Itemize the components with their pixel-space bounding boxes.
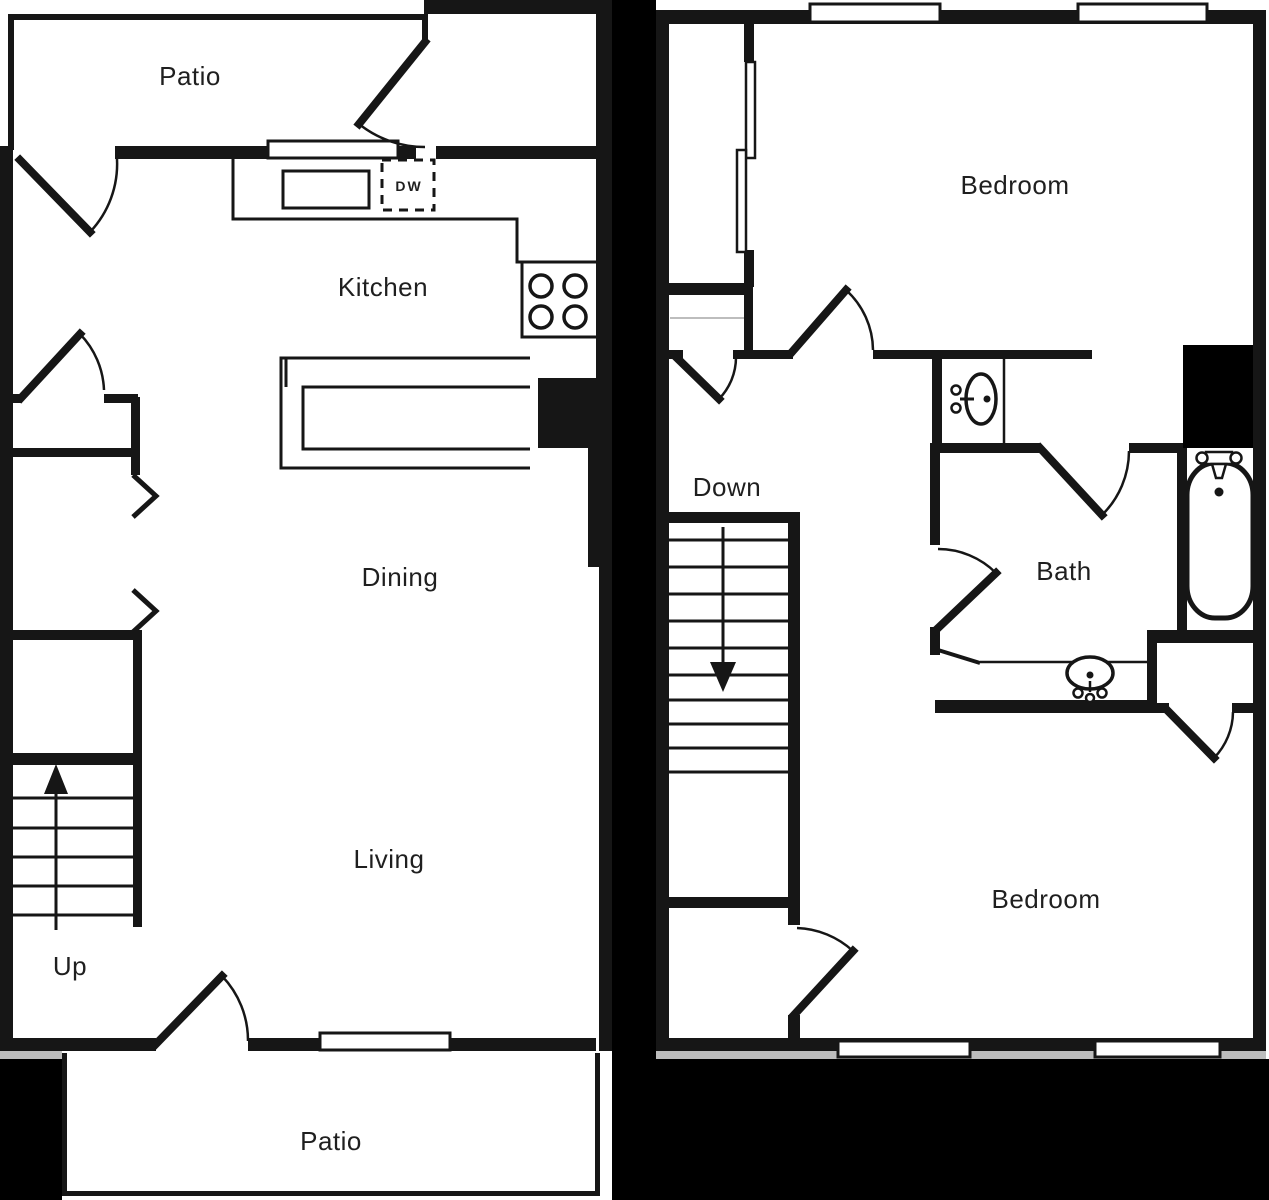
bathtub-icon — [1187, 452, 1253, 618]
door-leaf — [1040, 448, 1102, 515]
room-label-patio-top: Patio — [159, 61, 221, 91]
door-swing-icon — [1102, 451, 1129, 515]
hall-wall — [0, 448, 138, 457]
up-arrow-icon — [44, 764, 68, 930]
unit-top-wall-seg2 — [398, 146, 416, 159]
floor2-bottom-void — [656, 1059, 1269, 1200]
hall-top-wall — [733, 350, 793, 359]
vanity-sink-icon — [938, 650, 1147, 702]
dishwasher-icon: DW — [382, 160, 434, 210]
top-wall-bar — [424, 0, 612, 14]
sink-alcove-left-wall — [932, 359, 942, 446]
left-exterior-wall — [0, 146, 13, 1051]
patio-top-wall — [8, 14, 428, 20]
floor-1-plan: Up DW Patio K — [0, 0, 612, 1196]
patio2-bottom-wall — [62, 1191, 600, 1196]
down-arrow-icon — [710, 527, 736, 692]
floor1-corner-void — [0, 1059, 62, 1200]
unit-top-wall-seg1 — [115, 146, 268, 159]
door-swing-icon — [222, 976, 248, 1041]
patio-entry-door — [359, 42, 425, 147]
door-leaf — [1167, 710, 1214, 758]
door-swing-icon — [846, 290, 873, 350]
bath-bottom-wall — [935, 700, 1157, 713]
patio-to-unit-door — [20, 159, 117, 232]
stair-direction-label: Down — [693, 472, 761, 502]
stair-treads-icon — [13, 798, 133, 915]
bath-top-wall — [935, 350, 1092, 359]
room-label-patio-bottom: Patio — [300, 1126, 362, 1156]
right-exterior-wall-lower — [599, 448, 612, 1051]
door-swing-icon — [797, 928, 853, 951]
under-stair-closet-wall — [669, 897, 800, 908]
stair-treads-icon — [669, 540, 788, 772]
plan-separator-band — [612, 0, 656, 1200]
bedroom-front-wall — [873, 350, 935, 359]
kitchen-sink-icon — [283, 171, 369, 208]
door-leaf — [794, 951, 853, 1015]
tub-alcove-bottom-wall — [1147, 630, 1266, 643]
staircase-up: Up — [13, 764, 133, 981]
stove-burners-icon — [522, 262, 596, 337]
left-exterior-wall — [656, 10, 669, 1051]
storage-room-door — [21, 334, 104, 398]
kitchen-fixtures: DW — [233, 159, 612, 468]
sliding-closet-door-icon — [737, 62, 755, 252]
door-leaf — [156, 976, 222, 1044]
floor2-walls — [656, 10, 1266, 1051]
bedroom-top-door — [792, 290, 873, 352]
window-icon — [838, 1041, 970, 1057]
window-icon — [268, 141, 398, 158]
opening-chevron-icon — [133, 590, 156, 632]
dishwasher-label: DW — [395, 178, 422, 194]
door-leaf — [21, 334, 80, 398]
nook-door-right-stub — [1232, 703, 1253, 713]
window-icon — [810, 4, 940, 22]
room-label-bedroom-top: Bedroom — [961, 170, 1070, 200]
door-leaf — [792, 290, 846, 352]
door-leaf — [676, 357, 719, 399]
closet-wall-stub-top — [744, 24, 754, 62]
door-leaf — [936, 573, 996, 630]
bottom-wall-seg2 — [248, 1038, 320, 1051]
room-label-dining: Dining — [362, 562, 439, 592]
floor-2-plan: Down — [656, 4, 1266, 1057]
sink-alcove-bottom-wall — [930, 443, 1040, 453]
bath-left-wall-upper — [930, 453, 940, 545]
bottom-wall-seg1 — [0, 1038, 156, 1051]
door-swing-icon — [80, 334, 104, 390]
room-label-living: Living — [354, 844, 425, 874]
stairwell-top-wall — [669, 512, 793, 523]
opening-chevron-icon — [133, 475, 156, 517]
room-label-bedroom-bottom: Bedroom — [992, 884, 1101, 914]
bath-door — [1040, 448, 1129, 515]
patio2-left-wall — [62, 1053, 67, 1196]
bath-sink-icon — [952, 359, 1005, 445]
linen-room-door — [676, 357, 736, 399]
stair-head-wall — [0, 753, 133, 765]
door-swing-icon — [1214, 712, 1233, 758]
stair-side-wall — [133, 630, 142, 927]
door-leaf — [359, 42, 425, 124]
bath-door-stub-wall — [1129, 443, 1183, 453]
door-leaf — [20, 160, 90, 232]
refrigerator-icon — [538, 378, 612, 448]
window-icon — [1078, 4, 1207, 22]
peninsula-counter — [281, 358, 530, 468]
chase-block — [1183, 345, 1253, 448]
stair-direction-label: Up — [53, 951, 87, 981]
living-patio-door — [156, 976, 248, 1044]
bedroom-closet-door — [794, 928, 853, 1015]
door-swing-icon — [719, 357, 736, 399]
patio2-right-wall — [595, 1053, 600, 1196]
window-icon — [1095, 1041, 1220, 1057]
bottom-patio-walls — [62, 1053, 600, 1196]
linen-room-right-wall — [744, 283, 753, 359]
door-swing-icon — [90, 159, 117, 232]
door-swing-icon — [938, 549, 996, 573]
bath-nook-door — [1167, 710, 1233, 758]
background-voids — [0, 0, 1269, 1200]
bath-side-door — [936, 549, 996, 630]
room-label-kitchen: Kitchen — [338, 272, 428, 302]
hall-side-wall-upper — [131, 397, 140, 475]
unit-top-wall-seg3 — [436, 146, 596, 159]
stairwell-side-wall — [788, 512, 800, 925]
window-icon — [320, 1033, 450, 1050]
floorplan-page: Up DW Patio K — [0, 0, 1269, 1200]
bottom-wall-seg3 — [450, 1038, 596, 1051]
room-label-bath: Bath — [1036, 556, 1092, 586]
stair-closet-top-wall — [0, 630, 138, 640]
closet-bottom-wall — [669, 283, 745, 295]
closet-wall-stub-bottom — [744, 250, 754, 287]
floor1-corner-shadow — [0, 1051, 62, 1059]
patio-left-wall — [8, 14, 14, 150]
floorplan-drawing: Up DW Patio K — [0, 0, 1269, 1200]
